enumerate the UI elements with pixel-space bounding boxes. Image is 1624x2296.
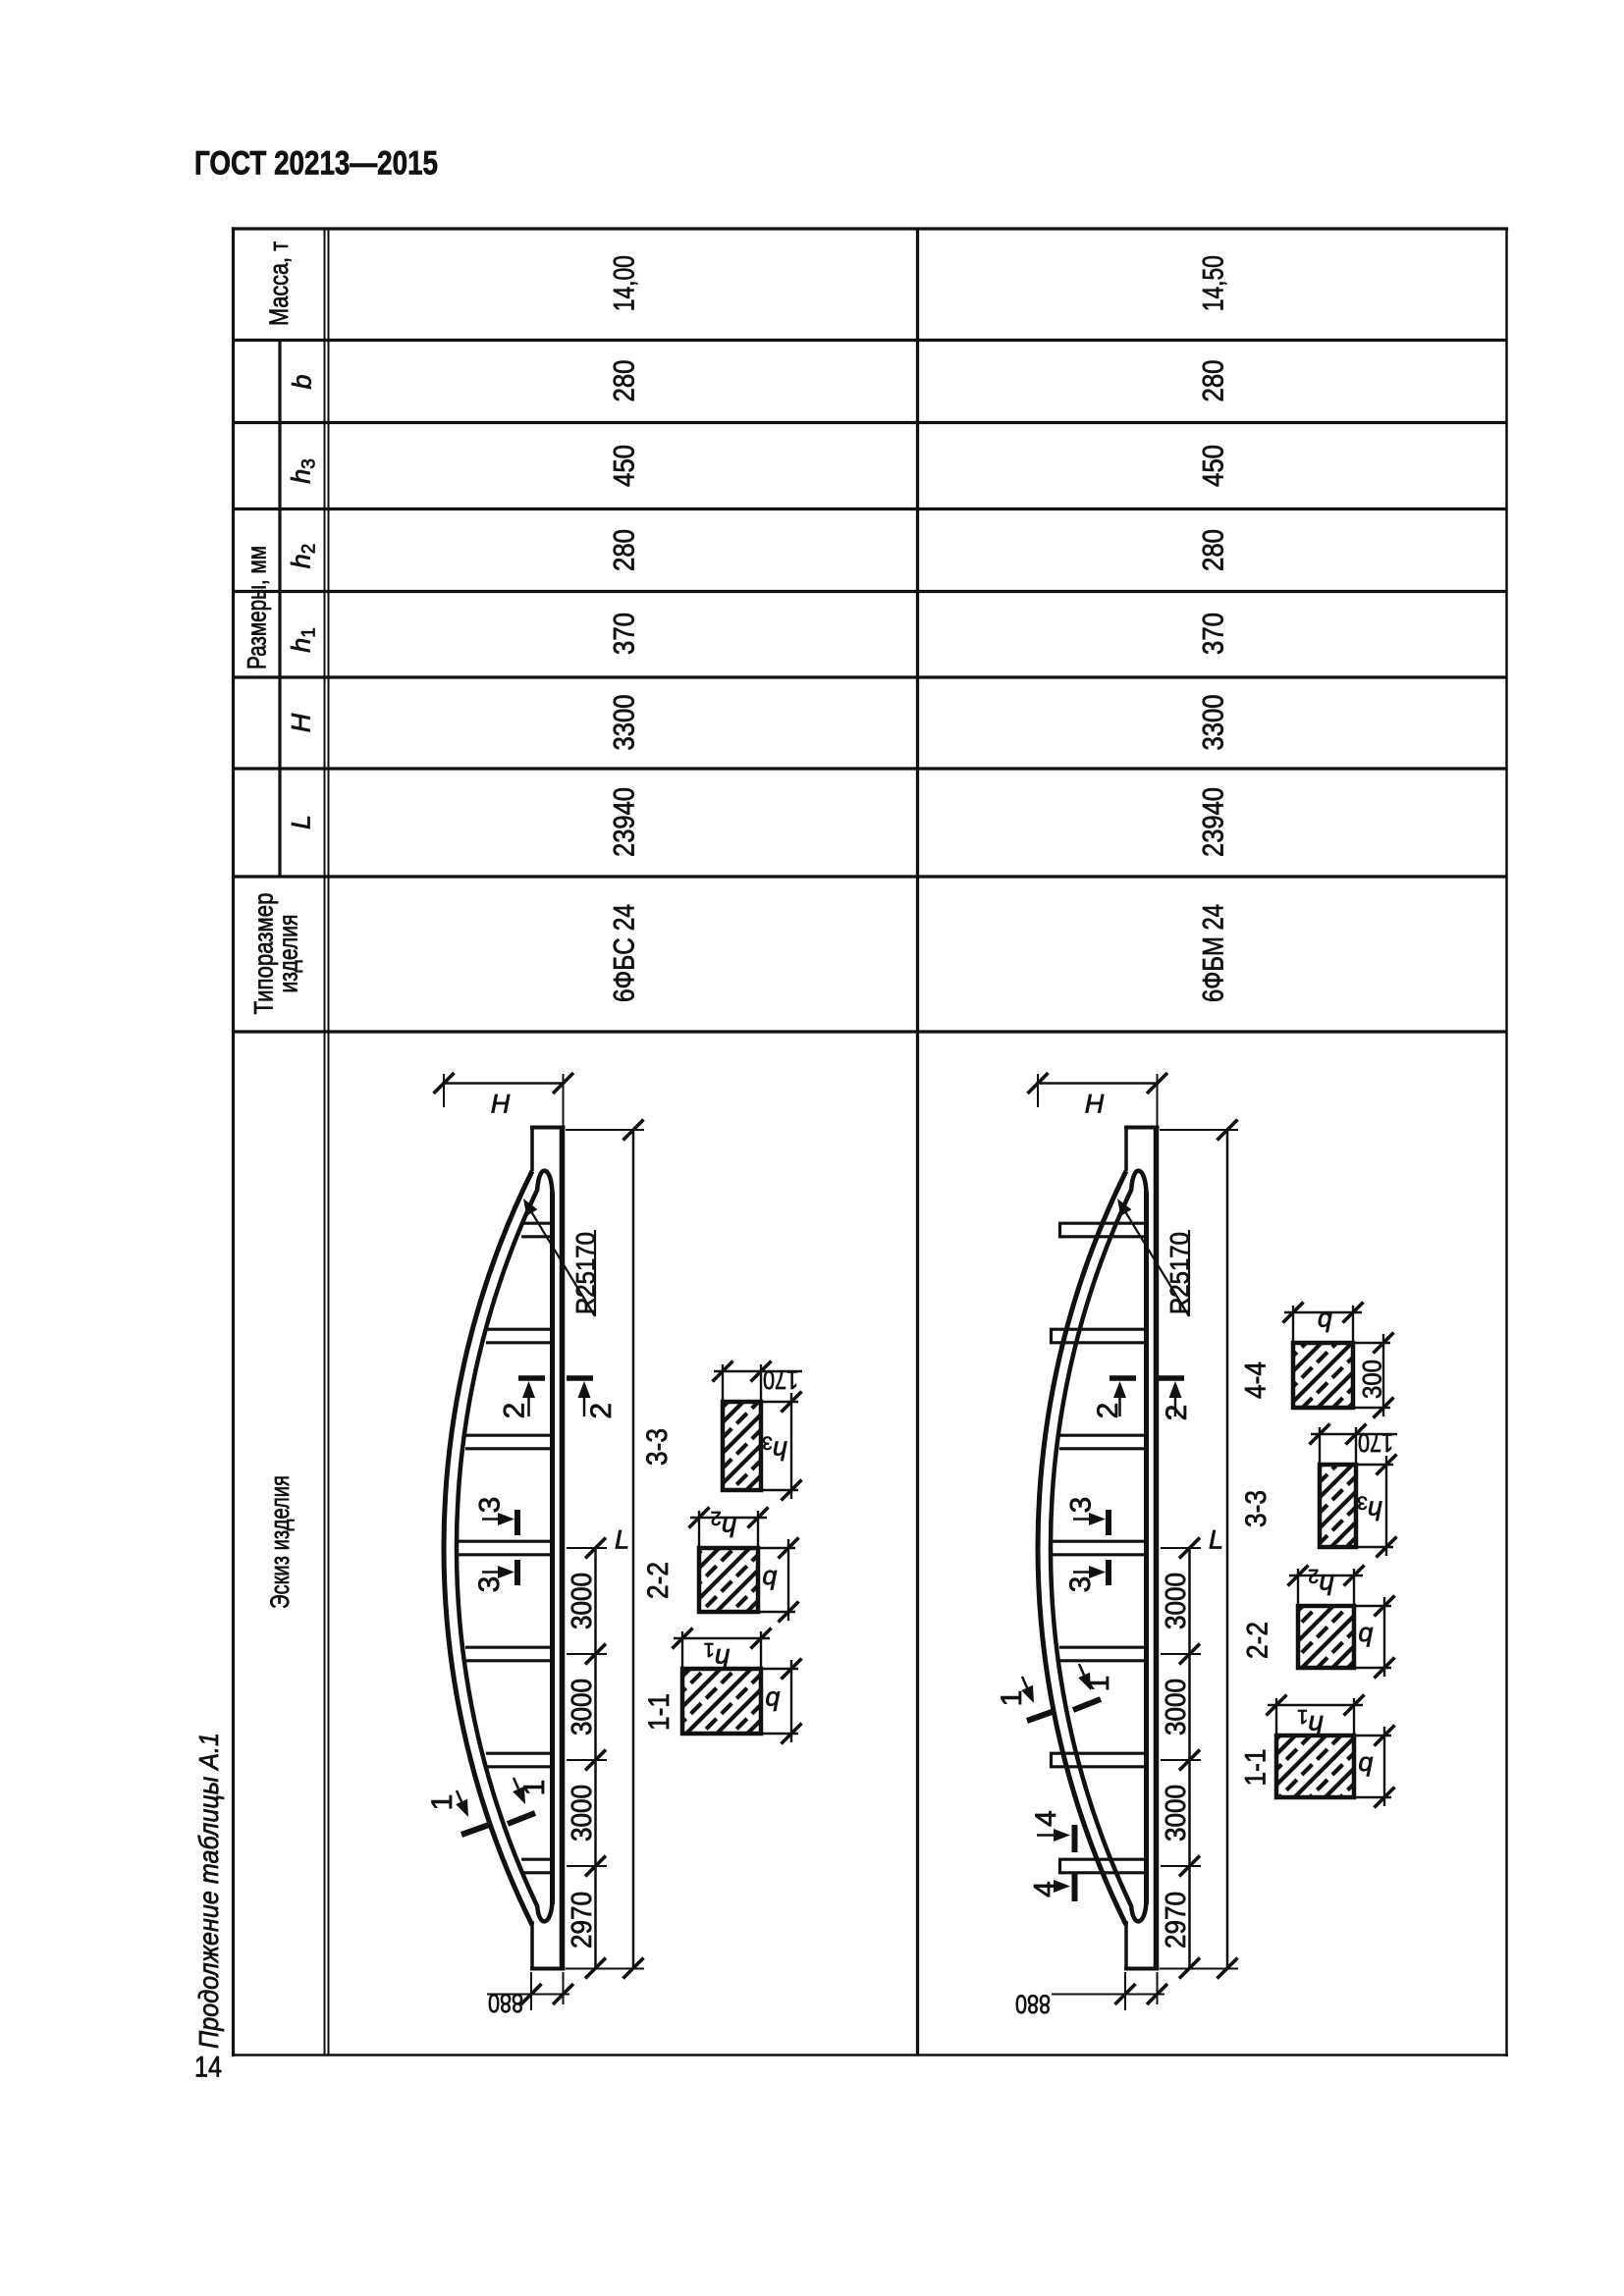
svg-text:170: 170 bbox=[763, 1364, 798, 1394]
svg-text:3: 3 bbox=[1064, 1576, 1097, 1593]
svg-text:h3: h3 bbox=[287, 458, 320, 484]
svg-text:b: b bbox=[765, 1685, 780, 1715]
svg-text:1: 1 bbox=[1083, 1676, 1115, 1692]
svg-text:880: 880 bbox=[488, 1988, 523, 2017]
svg-text:370: 370 bbox=[608, 613, 640, 655]
svg-text:6ФБМ 24: 6ФБМ 24 bbox=[1197, 904, 1229, 1002]
svg-text:L: L bbox=[1209, 1525, 1223, 1555]
svg-text:280: 280 bbox=[608, 360, 640, 402]
svg-text:3000: 3000 bbox=[1161, 1785, 1192, 1842]
svg-text:23940: 23940 bbox=[1197, 787, 1229, 857]
svg-text:1-1: 1-1 bbox=[1239, 1749, 1272, 1787]
svg-text:b: b bbox=[1318, 1307, 1332, 1336]
svg-text:h3: h3 bbox=[762, 1431, 787, 1465]
svg-text:3: 3 bbox=[473, 1576, 506, 1593]
svg-text:b: b bbox=[1358, 1622, 1373, 1651]
svg-text:1: 1 bbox=[518, 1780, 551, 1796]
svg-text:170: 170 bbox=[1358, 1427, 1393, 1457]
svg-text:450: 450 bbox=[608, 445, 640, 487]
svg-text:L: L bbox=[287, 815, 316, 829]
svg-text:L: L bbox=[615, 1525, 629, 1555]
svg-text:14,50: 14,50 bbox=[1197, 255, 1229, 311]
svg-text:2: 2 bbox=[585, 1403, 618, 1419]
svg-text:300: 300 bbox=[1358, 1360, 1387, 1399]
svg-text:2-2: 2-2 bbox=[1241, 1622, 1273, 1659]
svg-text:3-3: 3-3 bbox=[641, 1428, 674, 1466]
svg-text:1: 1 bbox=[996, 1690, 1028, 1707]
svg-text:1-1: 1-1 bbox=[643, 1693, 676, 1731]
svg-text:3000: 3000 bbox=[567, 1785, 598, 1842]
svg-text:2-2: 2-2 bbox=[642, 1562, 675, 1599]
svg-text:4: 4 bbox=[1028, 1881, 1060, 1897]
svg-text:R25170: R25170 bbox=[1165, 1232, 1195, 1314]
svg-text:4: 4 bbox=[1030, 1810, 1062, 1827]
svg-text:14,00: 14,00 bbox=[608, 255, 640, 311]
svg-text:R25170: R25170 bbox=[571, 1232, 601, 1314]
svg-text:2: 2 bbox=[1161, 1405, 1193, 1421]
svg-text:4-4: 4-4 bbox=[1239, 1362, 1272, 1399]
svg-text:14: 14 bbox=[194, 2051, 222, 2083]
svg-text:h2: h2 bbox=[287, 544, 320, 569]
svg-text:3000: 3000 bbox=[1161, 1573, 1192, 1629]
svg-text:b: b bbox=[1358, 1751, 1373, 1781]
svg-text:H: H bbox=[1085, 1090, 1105, 1119]
svg-text:3300: 3300 bbox=[1197, 695, 1229, 751]
svg-text:23940: 23940 bbox=[608, 787, 640, 857]
svg-text:280: 280 bbox=[1197, 360, 1229, 402]
svg-text:3: 3 bbox=[473, 1497, 506, 1514]
svg-text:h2: h2 bbox=[711, 1507, 737, 1542]
svg-text:6ФБС 24: 6ФБС 24 bbox=[608, 904, 640, 1002]
svg-text:880: 880 bbox=[1015, 1989, 1051, 2018]
svg-text:1: 1 bbox=[426, 1794, 459, 1811]
svg-text:h3: h3 bbox=[1357, 1491, 1382, 1524]
svg-text:2: 2 bbox=[499, 1403, 531, 1419]
svg-text:H: H bbox=[287, 713, 316, 732]
svg-text:Эскиз изделия: Эскиз изделия bbox=[265, 1475, 295, 1609]
svg-text:b: b bbox=[762, 1565, 777, 1594]
svg-text:ГОСТ 20213—2015: ГОСТ 20213—2015 bbox=[194, 145, 438, 183]
svg-text:2: 2 bbox=[1092, 1403, 1124, 1419]
svg-text:370: 370 bbox=[1197, 613, 1229, 655]
svg-text:3000: 3000 bbox=[567, 1573, 598, 1629]
svg-text:Масса, т: Масса, т bbox=[264, 241, 294, 326]
svg-text:h1: h1 bbox=[287, 627, 320, 653]
svg-text:2970: 2970 bbox=[567, 1892, 598, 1949]
svg-text:H: H bbox=[491, 1090, 511, 1119]
svg-text:3-3: 3-3 bbox=[1240, 1490, 1272, 1527]
svg-text:b: b bbox=[288, 374, 317, 389]
svg-text:3000: 3000 bbox=[1161, 1679, 1192, 1735]
svg-text:Размеры, мм: Размеры, мм bbox=[243, 546, 272, 669]
svg-text:3: 3 bbox=[1064, 1497, 1097, 1514]
svg-text:450: 450 bbox=[1197, 445, 1229, 487]
svg-text:280: 280 bbox=[1197, 529, 1229, 571]
svg-text:2970: 2970 bbox=[1161, 1892, 1192, 1949]
svg-text:изделия: изделия bbox=[274, 915, 303, 993]
svg-text:3000: 3000 bbox=[567, 1679, 598, 1735]
svg-text:3300: 3300 bbox=[608, 695, 640, 751]
svg-text:h2: h2 bbox=[1308, 1565, 1334, 1600]
svg-text:Продолжение таблицы А.1: Продолжение таблицы А.1 bbox=[193, 1733, 224, 2049]
svg-text:280: 280 bbox=[608, 529, 640, 571]
